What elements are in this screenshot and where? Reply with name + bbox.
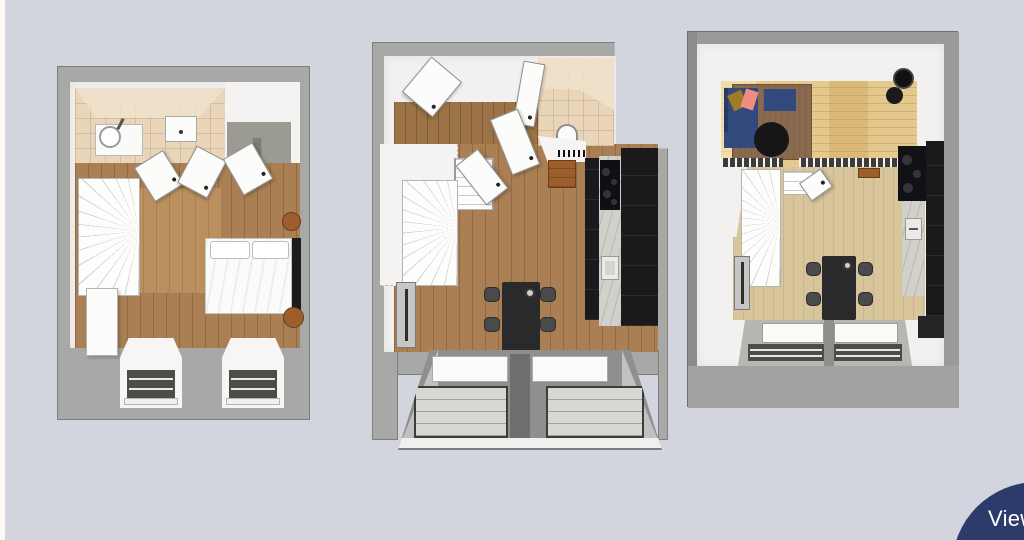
pendant-lamp-icon	[886, 87, 903, 104]
dining-chair	[806, 262, 821, 276]
dining-chair	[858, 262, 873, 276]
dormer-window	[120, 338, 182, 408]
window-bar	[750, 349, 822, 351]
window-pane	[762, 323, 824, 343]
screen-edge-strip	[0, 0, 5, 540]
drain-dot	[179, 130, 183, 134]
floorplan-viewer: View	[0, 0, 1024, 540]
window-sill	[124, 398, 178, 405]
side-stool	[283, 307, 304, 328]
appliance-icon	[905, 218, 922, 240]
window-pane	[834, 323, 898, 343]
sink-icon	[601, 256, 619, 280]
dining-table	[822, 256, 856, 320]
window-bar	[129, 388, 173, 390]
window-sill	[398, 438, 662, 450]
dining-table	[502, 282, 540, 352]
pillow	[252, 241, 289, 259]
side-stool	[282, 212, 301, 231]
view-button[interactable]: View	[952, 482, 1024, 540]
kitchen-counter-marble	[902, 201, 924, 296]
double-bed	[205, 238, 292, 314]
kitchen-return	[918, 316, 944, 338]
mezzanine-railing	[721, 158, 783, 167]
vent-grille-icon	[558, 150, 586, 157]
dining-chair	[806, 292, 821, 306]
ottoman	[764, 89, 796, 111]
dining-chair	[540, 317, 556, 332]
window-bar	[836, 349, 900, 351]
window-lower-panel	[546, 386, 644, 438]
bench	[858, 168, 880, 178]
window-lower-frame	[748, 344, 824, 361]
dormer-window	[222, 338, 284, 408]
wood-cabinet	[548, 160, 576, 188]
bathroom-wall-tiles	[538, 58, 614, 110]
table-plant-icon	[525, 288, 535, 298]
window-mullion	[824, 320, 834, 366]
dormer-roof-windows	[398, 350, 662, 450]
coffee-table	[754, 122, 789, 157]
outer-wall-top	[688, 32, 959, 44]
kitchen-tall-cabinets	[926, 141, 944, 316]
window-frame	[127, 370, 175, 398]
window-mullion	[510, 354, 530, 440]
cooktop-icon	[600, 160, 620, 210]
window-sill	[226, 398, 280, 405]
winder-stairs	[402, 180, 458, 286]
appliance-handle	[909, 228, 918, 230]
window-recess	[738, 320, 912, 366]
window-lower-frame	[834, 344, 902, 361]
headboard	[292, 238, 301, 314]
outer-wall-apron	[658, 350, 668, 440]
floorplan-living-level[interactable]	[687, 31, 958, 407]
floorplan-kitchen-level[interactable]	[372, 40, 668, 452]
window-frame	[229, 370, 277, 398]
dining-chair	[858, 292, 873, 306]
window-pane	[532, 356, 608, 382]
dining-chair	[484, 317, 500, 332]
wardrobe	[86, 288, 118, 356]
sink-basin	[605, 261, 615, 275]
washbasin-icon	[165, 116, 197, 142]
room-bathroom	[538, 58, 614, 146]
view-button-label: View	[988, 506, 1024, 532]
window-bar	[750, 355, 822, 357]
radiator	[396, 282, 416, 348]
window-lower-panel	[414, 386, 508, 438]
cooktop-icon	[898, 146, 926, 201]
outer-wall-right	[944, 32, 959, 366]
kitchen-tall-cabinets	[621, 148, 658, 326]
window-bar	[231, 378, 275, 380]
outer-wall-left	[688, 32, 697, 366]
pillow	[210, 241, 250, 259]
window-bar	[231, 388, 275, 390]
dining-chair	[540, 287, 556, 302]
kitchen-cabinet-column	[585, 158, 599, 320]
window-bar	[836, 355, 900, 357]
pendant-lamp-icon	[893, 68, 914, 89]
mezzanine-railing	[799, 158, 911, 167]
outer-wall-apron	[372, 350, 398, 440]
dining-chair	[484, 287, 500, 302]
window-pane	[432, 356, 508, 382]
outer-wall-bottom	[688, 366, 959, 408]
table-plant-icon	[843, 261, 852, 270]
winder-stairs	[78, 178, 140, 296]
floorplan-bedroom-level[interactable]	[57, 66, 310, 420]
radiator	[734, 256, 750, 310]
bathroom-wall-tiles	[75, 88, 225, 118]
window-bar	[129, 378, 173, 380]
